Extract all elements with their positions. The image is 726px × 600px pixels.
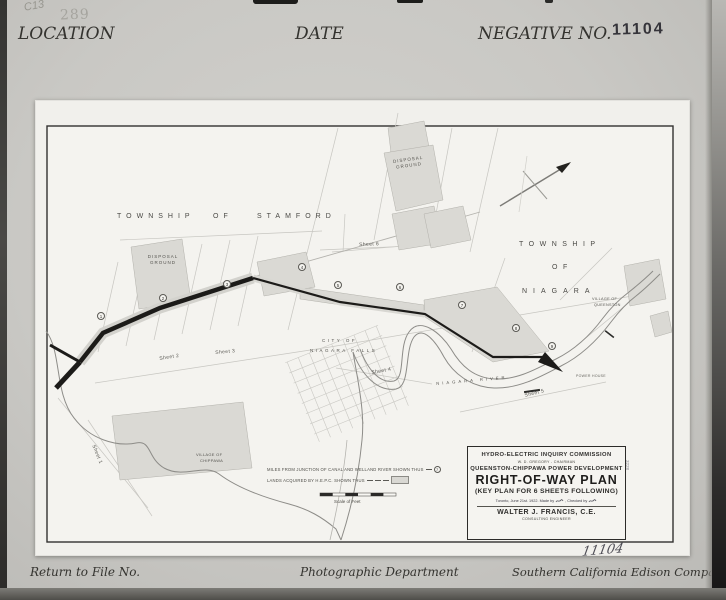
mile-marker: 3 bbox=[223, 280, 231, 288]
mile-marker: 9 bbox=[548, 342, 556, 350]
mile-marker: 1 bbox=[97, 312, 105, 320]
village-queenston-label: QUEENSTON bbox=[594, 303, 621, 307]
checked-line-text: , Checked by bbox=[565, 499, 587, 503]
village-chippawa-label: CHIPPAWA bbox=[200, 458, 223, 463]
scan-edge-right bbox=[712, 0, 726, 600]
mile-marker: 2 bbox=[159, 294, 167, 302]
scale-of-feet-label: Scale of Feet bbox=[334, 499, 361, 504]
date-line-text: Toronto, June 21st. 1922. Made by bbox=[496, 499, 554, 503]
company-label: Southern California Edison Company bbox=[512, 565, 726, 579]
mile-marker: 6 bbox=[396, 283, 404, 291]
village-queenston-label: VILLAGE OF bbox=[592, 297, 617, 301]
township-niagara-word3: NIAGARA bbox=[522, 288, 596, 295]
power-house-label: POWER HOUSE bbox=[576, 374, 606, 378]
mile-marker: 8 bbox=[512, 324, 520, 332]
legend-miles-text: MILES FROM JUNCTION OF CANAL AND WELLAND… bbox=[267, 467, 424, 472]
legend-mile-symbol: 7 bbox=[434, 466, 441, 473]
legend-dash bbox=[383, 480, 389, 481]
village-chippawa-label: VILLAGE OF bbox=[196, 452, 222, 457]
mile-marker: 4 bbox=[298, 263, 306, 271]
legend-dash bbox=[375, 480, 381, 481]
plan-subtitle: (KEY PLAN FOR 6 SHEETS FOLLOWING) bbox=[468, 488, 625, 495]
legend-miles-row: MILES FROM JUNCTION OF CANAL AND WELLAND… bbox=[267, 466, 441, 473]
pencil-note: C13 bbox=[23, 0, 45, 14]
photo-archive-card: C13 289 LOCATION DATE NEGATIVE NO. 11104 bbox=[0, 0, 726, 600]
township-stamford-word1: TOWNSHIP bbox=[117, 213, 195, 220]
legend-lands-text: LANDS ACQUIRED BY H.E.P.C. SHOWN THUS bbox=[267, 478, 365, 483]
township-stamford-word2: OF bbox=[213, 213, 233, 220]
scan-edge-mark bbox=[397, 0, 423, 3]
date-made-checked-line: Toronto, June 21st. 1922. Made by , Chec… bbox=[468, 498, 625, 504]
margin-number: 3228 bbox=[625, 460, 630, 470]
location-label: LOCATION bbox=[18, 24, 114, 44]
mile-marker: 7 bbox=[458, 301, 466, 309]
legend-acquired-land-swatch bbox=[391, 476, 409, 484]
handwritten-negative-number: 11104 bbox=[581, 541, 625, 560]
scan-edge-left bbox=[0, 0, 7, 600]
scan-edge-mark bbox=[253, 0, 298, 4]
disposal-ground-left-label: DISPOSAL GROUND bbox=[140, 254, 186, 266]
engineer-title: CONSULTING ENGINEER bbox=[468, 517, 625, 521]
chairman-name: W. D. GREGORY - CHAIRMAN bbox=[468, 460, 625, 464]
legend-dash bbox=[426, 469, 432, 470]
date-label: DATE bbox=[295, 24, 344, 44]
development-name: QUEENSTON-CHIPPAWA POWER DEVELOPMENT bbox=[468, 466, 625, 472]
initials-scribble bbox=[555, 498, 564, 504]
city-niagara-falls-label: CITY OF bbox=[322, 338, 357, 343]
negative-no-label: NEGATIVE NO. bbox=[478, 24, 612, 44]
scan-edge-bottom bbox=[0, 588, 726, 600]
mile-marker: 5 bbox=[334, 281, 342, 289]
township-niagara-word2: OF bbox=[552, 264, 573, 271]
engineer-name: WALTER J. FRANCIS, C.E. bbox=[468, 509, 625, 516]
plan-title: RIGHT-OF-WAY PLAN bbox=[468, 473, 625, 487]
township-stamford-word3: STAMFORD bbox=[257, 213, 336, 220]
city-niagara-falls-label: NIAGARA FALLS bbox=[310, 348, 377, 353]
initials-scribble bbox=[588, 498, 597, 504]
scan-edge-mark bbox=[545, 0, 553, 3]
sheet-6-label: Sheet 6 bbox=[359, 241, 379, 248]
photographic-department-label: Photographic Department bbox=[300, 565, 459, 579]
card-right-edge-shadow bbox=[705, 0, 712, 600]
faint-number-stamp: 289 bbox=[60, 6, 90, 23]
title-block-divider bbox=[477, 506, 616, 507]
title-block: HYDRO-ELECTRIC INQUIRY COMMISSION W. D. … bbox=[467, 446, 626, 540]
return-to-file-label: Return to File No. bbox=[30, 565, 140, 579]
negative-number-stamp: 11104 bbox=[612, 20, 665, 39]
legend-dash bbox=[367, 480, 373, 481]
commission-name: HYDRO-ELECTRIC INQUIRY COMMISSION bbox=[468, 452, 625, 458]
township-niagara-word1: TOWNSHIP bbox=[519, 241, 601, 248]
legend-lands-row: LANDS ACQUIRED BY H.E.P.C. SHOWN THUS bbox=[267, 476, 409, 484]
